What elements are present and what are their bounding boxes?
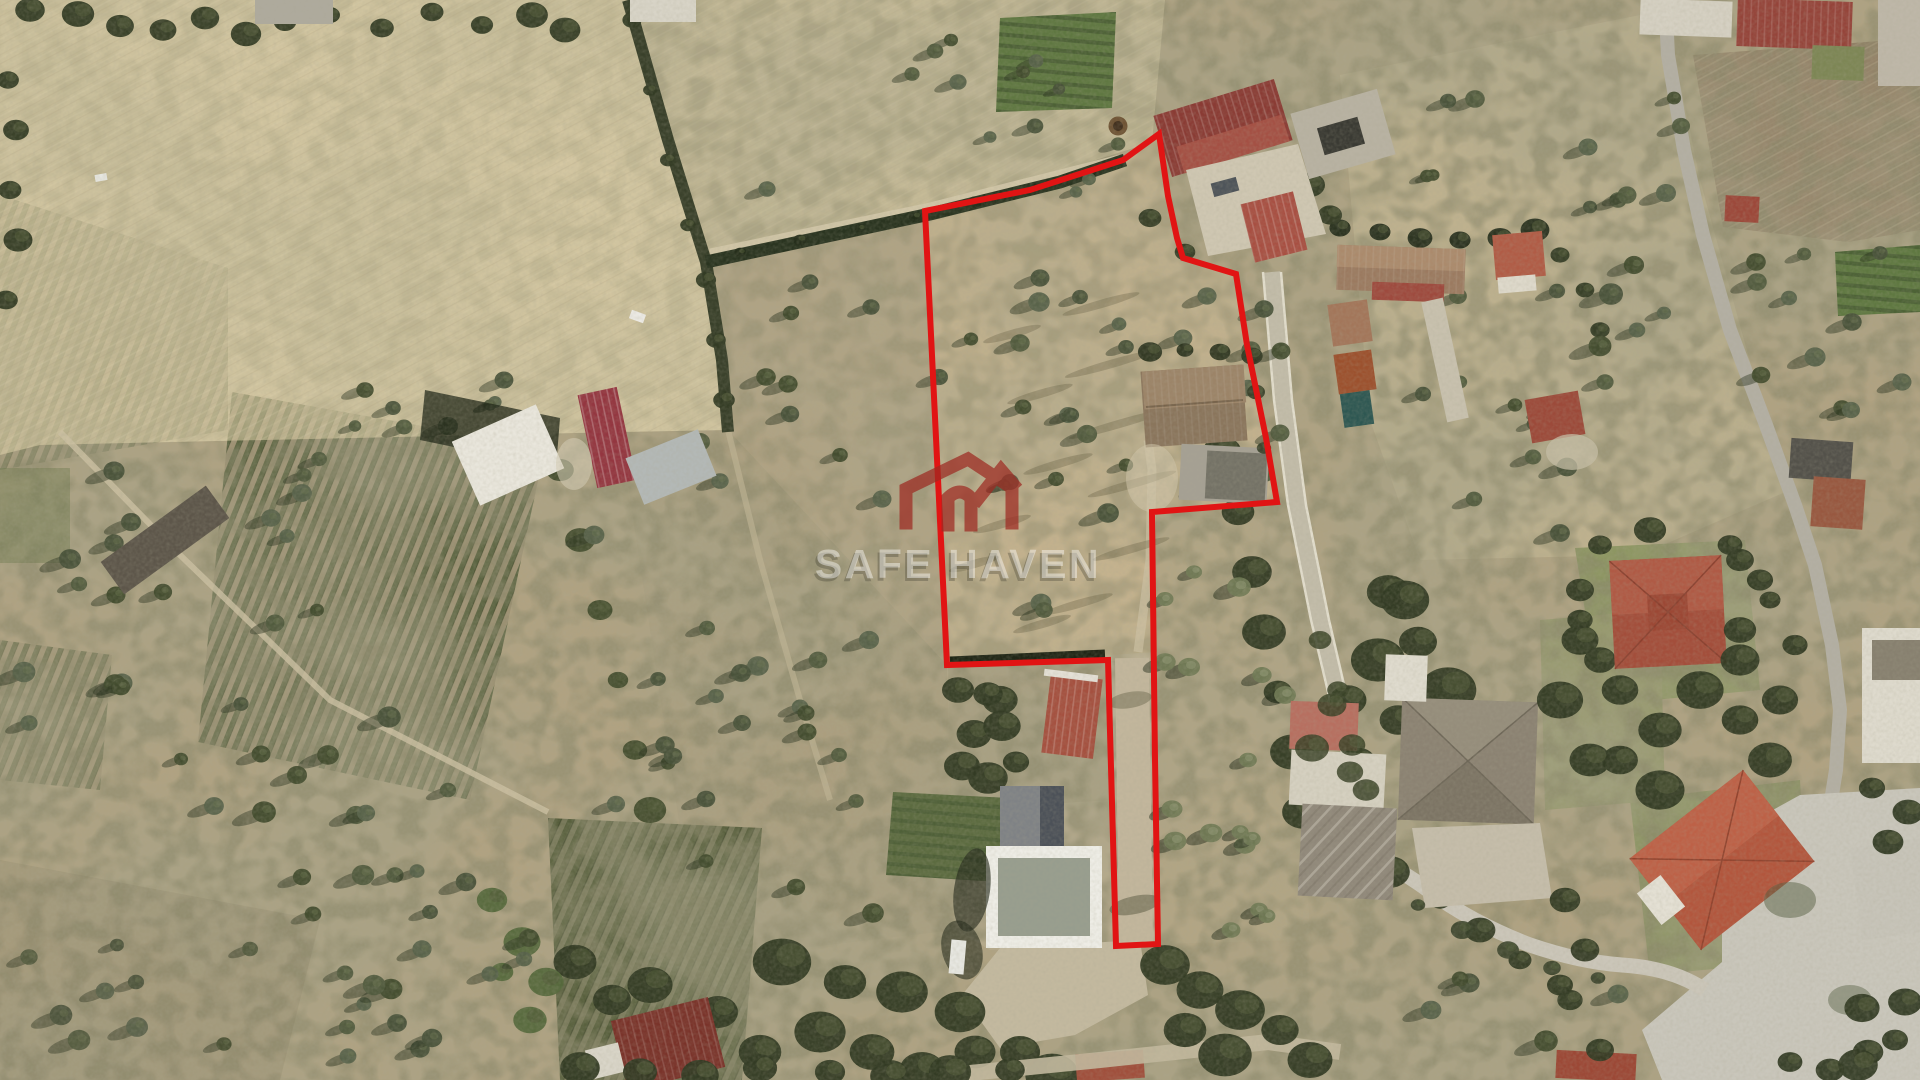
svg-text:SAFE HAVEN: SAFE HAVEN — [815, 541, 1101, 587]
